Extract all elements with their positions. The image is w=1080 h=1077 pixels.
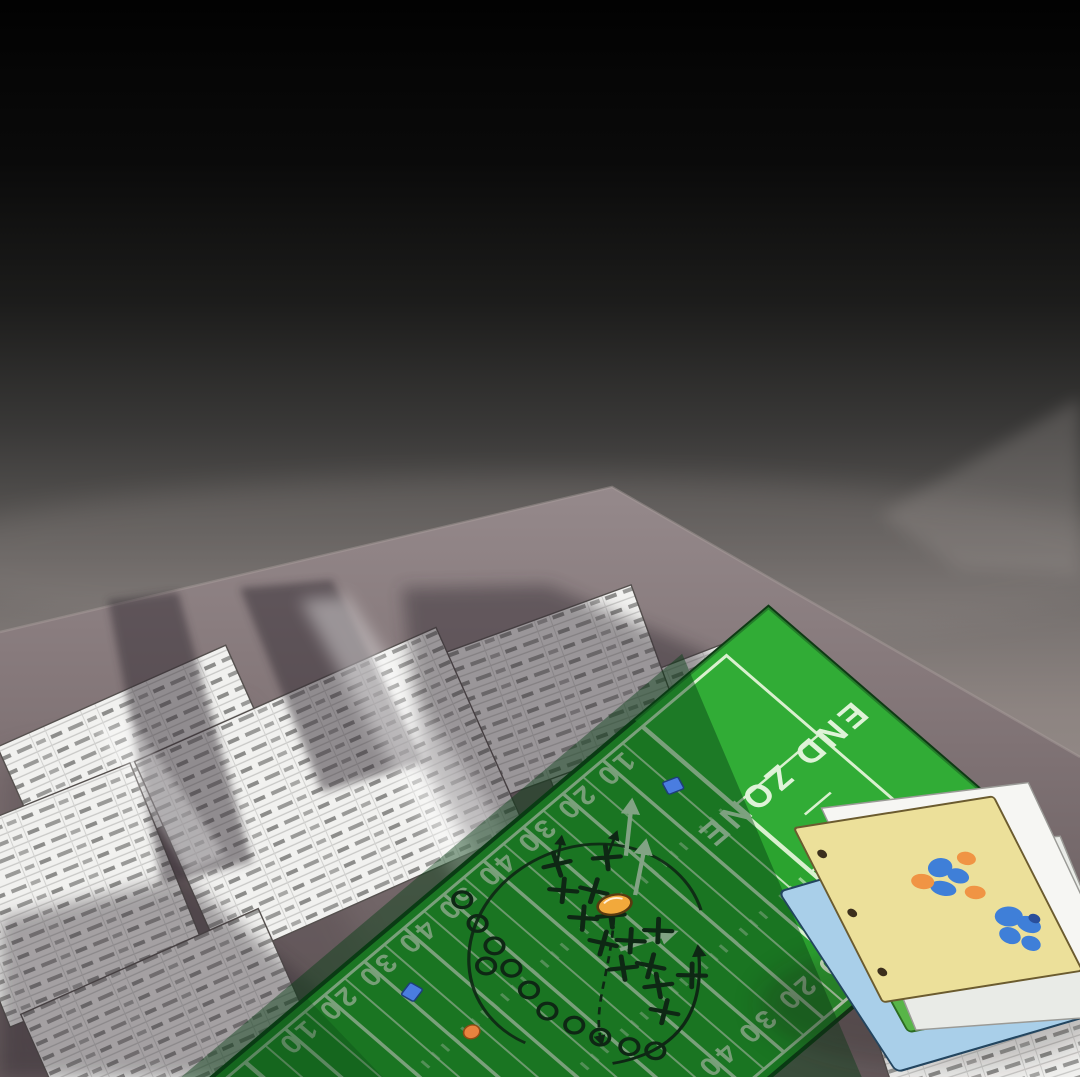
anime-desk-scene: 101020203030404050504040303020201010 END… — [0, 0, 1080, 1077]
scene-canvas: 101020203030404050504040303020201010 END… — [0, 0, 1080, 1077]
